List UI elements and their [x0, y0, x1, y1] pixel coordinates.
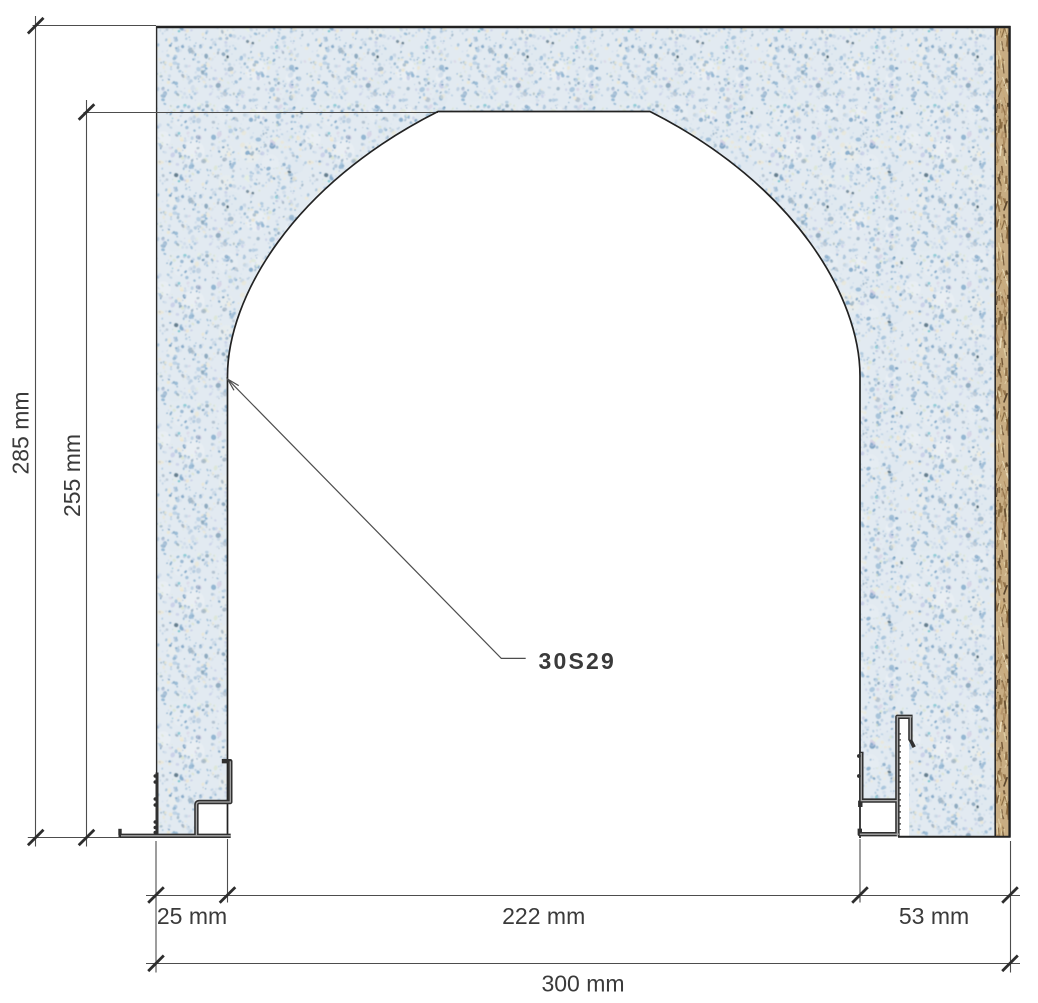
svg-text:300 mm: 300 mm [541, 971, 624, 997]
svg-text:255 mm: 255 mm [59, 434, 85, 517]
svg-text:25 mm: 25 mm [157, 903, 227, 929]
svg-text:53 mm: 53 mm [899, 903, 969, 929]
svg-text:222 mm: 222 mm [502, 903, 585, 929]
svg-text:30S29: 30S29 [539, 648, 617, 674]
svg-text:285 mm: 285 mm [8, 391, 34, 474]
